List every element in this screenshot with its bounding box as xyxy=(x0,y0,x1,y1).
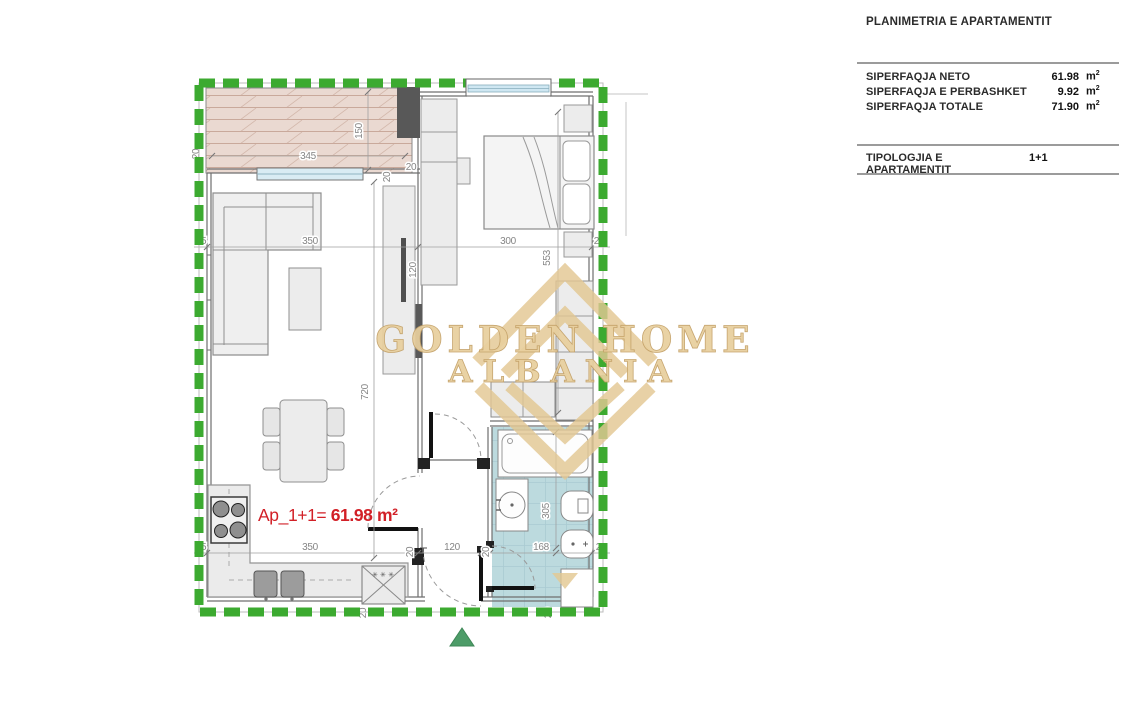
tv xyxy=(401,238,406,302)
dim-label: 20 xyxy=(382,171,393,182)
pillow xyxy=(563,184,590,224)
bathroom-sink xyxy=(496,479,528,531)
toilet xyxy=(561,491,593,521)
info-panel: PLANIMETRIA E APARTAMENTIT SIPERFAQJA NE… xyxy=(857,0,1119,200)
entrance-marker xyxy=(450,628,474,646)
cooktop xyxy=(211,497,247,543)
area-row-value: 9.92 xyxy=(1033,86,1079,98)
nightstand xyxy=(564,232,592,257)
dim-label: 120 xyxy=(408,261,419,278)
dim-label: 120 xyxy=(444,542,461,553)
coffee-table xyxy=(289,268,321,330)
panel-title: PLANIMETRIA E APARTAMENTIT xyxy=(866,16,1052,28)
dim-label: 168 xyxy=(533,542,550,553)
bed xyxy=(484,136,594,229)
area-row-label: SIPERFAQJA E PERBASHKET xyxy=(866,86,1033,98)
area-row-unit: m2 xyxy=(1079,70,1114,83)
area-row-value: 61.98 xyxy=(1033,71,1079,83)
bidet xyxy=(561,530,593,558)
dim-label: 350 xyxy=(302,236,319,247)
area-row-total: SIPERFAQJA TOTALE 71.90 m2 xyxy=(866,99,1114,114)
nightstand xyxy=(564,105,592,132)
area-row-value: 71.90 xyxy=(1033,101,1079,113)
bedroom-cabinet xyxy=(421,99,470,285)
chair xyxy=(263,408,280,436)
exterior-context-lines xyxy=(605,94,648,236)
wall-column xyxy=(397,87,420,138)
chair xyxy=(327,442,344,470)
bedroom-window xyxy=(466,79,551,96)
dim-label: 345 xyxy=(300,151,317,162)
apartment-plan-page: ✳ ✳ ✳ xyxy=(0,0,1142,703)
area-table: SIPERFAQJA NETO 61.98 m2 SIPERFAQJA E PE… xyxy=(866,69,1114,114)
watermark-text: GOLDEN HOME ALBANIA xyxy=(375,319,754,390)
dim-label: 350 xyxy=(302,542,319,553)
dim-label: 150 xyxy=(354,122,365,139)
divider xyxy=(857,144,1119,146)
area-label-prefix: Ap_1+1= xyxy=(258,505,326,526)
divider xyxy=(857,62,1119,64)
pillow xyxy=(563,141,590,181)
dining-table xyxy=(263,400,344,482)
area-label: Ap_1+1= 61.98 m² xyxy=(258,505,398,526)
divider xyxy=(857,173,1119,175)
dim-label: 305 xyxy=(541,502,552,519)
chair xyxy=(263,442,280,470)
dim-label: 720 xyxy=(360,383,371,400)
entrance-door-arc xyxy=(423,548,481,606)
area-row-net: SIPERFAQJA NETO 61.98 m2 xyxy=(866,69,1114,84)
area-row-label: SIPERFAQJA NETO xyxy=(866,71,1033,83)
area-row-label: SIPERFAQJA TOTALE xyxy=(866,101,1033,113)
dim-label: 300 xyxy=(500,236,517,247)
door-bedroom-arc xyxy=(435,414,481,460)
area-row-unit: m2 xyxy=(1079,100,1114,113)
area-row-common: SIPERFAQJA E PERBASHKET 9.92 m2 xyxy=(866,84,1114,99)
dim-label: 553 xyxy=(542,249,553,266)
living-room-window xyxy=(257,168,363,180)
dim-label: 20 xyxy=(405,546,416,557)
appliance-marks: ✳ ✳ ✳ xyxy=(372,571,394,579)
area-label-value: 61.98 m² xyxy=(331,505,398,525)
dim-label: 20 xyxy=(406,162,417,173)
dim-label: 20 xyxy=(481,546,492,557)
area-row-unit: m2 xyxy=(1079,85,1114,98)
dishwasher: ✳ ✳ ✳ xyxy=(362,566,405,604)
watermark-line2: ALBANIA xyxy=(448,354,682,390)
chair xyxy=(327,408,344,436)
